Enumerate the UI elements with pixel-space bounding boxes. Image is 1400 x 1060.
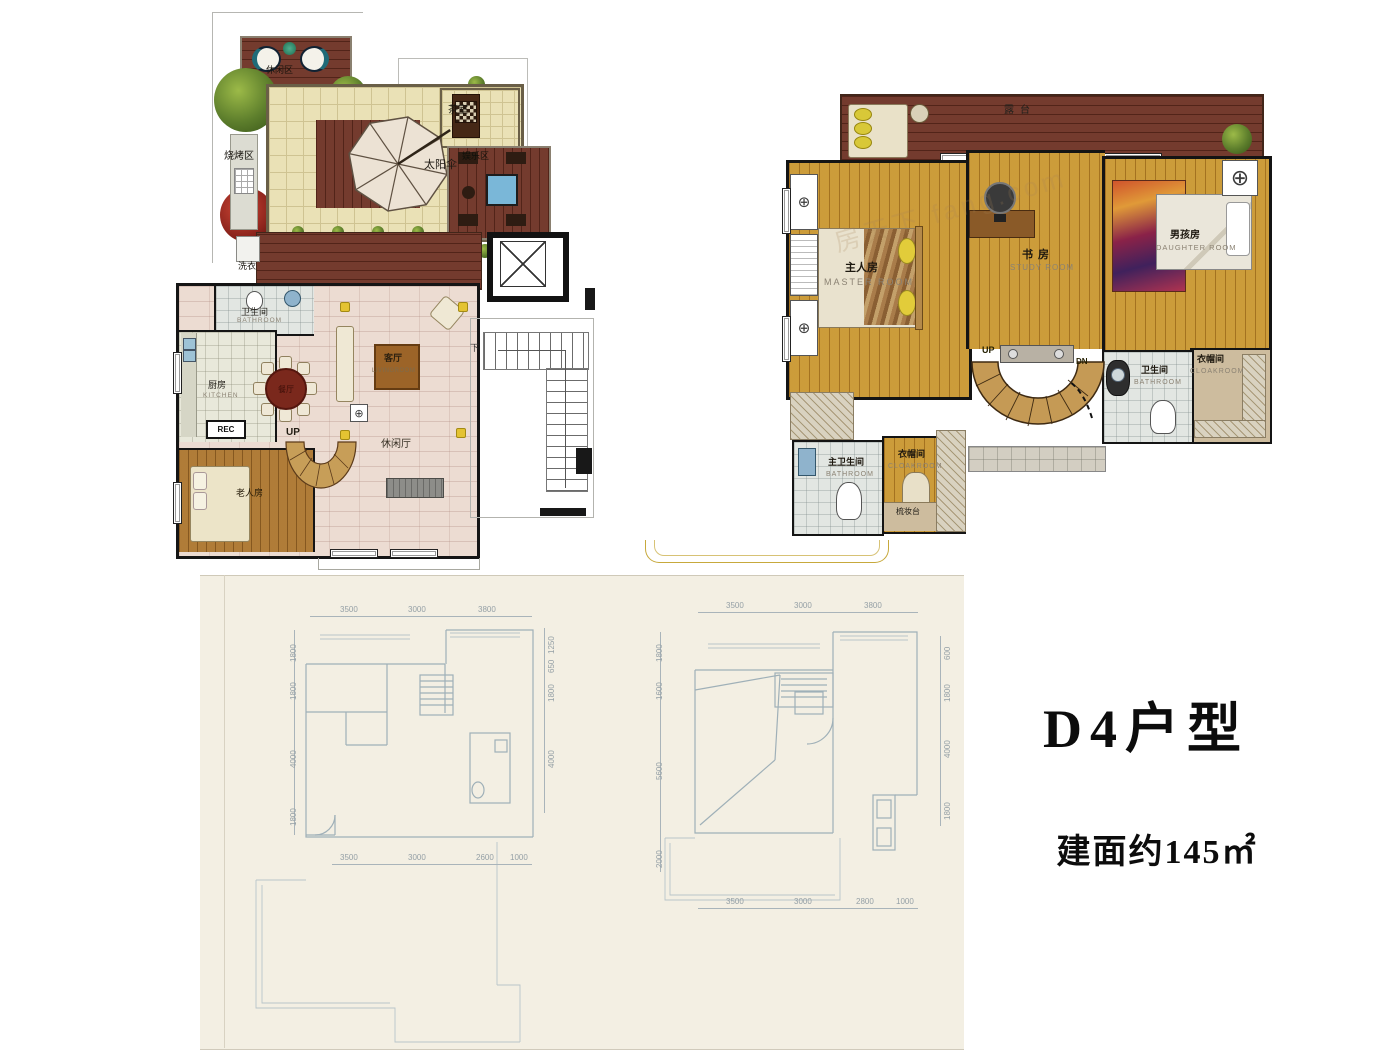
deck-mat (506, 214, 526, 226)
dim-label: 4000 (290, 750, 298, 768)
dim-label: 1000 (896, 898, 914, 906)
lounge-chair (300, 46, 329, 72)
dim-label: 3000 (794, 898, 812, 906)
shelving (936, 430, 966, 532)
bbq-grill (234, 168, 254, 194)
wardrobe (790, 234, 818, 296)
master-bath-label: 主卫生间 (828, 458, 864, 467)
terrace-plant (1222, 124, 1252, 154)
up-label-1f: UP (286, 428, 300, 438)
rec-box: REC (206, 420, 246, 439)
deck-stool (462, 186, 475, 199)
elevator-car (500, 241, 546, 287)
boy-room-label: 男孩房 (1170, 231, 1200, 241)
cloakroom-right-label-en: CLOAKROOM (1190, 368, 1245, 375)
accent (340, 302, 350, 312)
dim-label: 1800 (548, 684, 556, 702)
fan-icon: ⊕ (350, 404, 368, 422)
dim-label: 1250 (548, 636, 556, 654)
dim-label: 1800 (290, 682, 298, 700)
dimline (698, 612, 918, 613)
unit-title: D4户型 (1016, 702, 1276, 756)
window (173, 352, 182, 394)
dimline (940, 636, 941, 826)
stair-rail (498, 350, 566, 351)
umbrella-label: 太阳伞 (424, 160, 457, 171)
window (173, 482, 182, 524)
dimline (310, 616, 532, 617)
dim-label: 3500 (340, 854, 358, 862)
dining-label: 餐厅 (278, 384, 294, 395)
dim-label: 1800 (944, 802, 952, 820)
dining-chair (279, 408, 292, 422)
down-label-1f: 下 (470, 344, 479, 353)
dim-label: 3800 (864, 602, 882, 610)
leisure-area-label: 休闲区 (266, 66, 293, 75)
dn-label-2f: DN (1076, 358, 1088, 366)
dimline (332, 864, 532, 865)
dim-label: 3800 (478, 606, 496, 614)
dim-label: 1800 (290, 808, 298, 826)
pillow (193, 472, 207, 490)
bathroom-1f-label-en: BATHROOM (237, 318, 282, 325)
unit-area: 建面约145㎡ (1012, 836, 1302, 870)
stair-run-horizontal (483, 332, 589, 370)
accent (456, 428, 466, 438)
dim-label: 3000 (408, 854, 426, 862)
dim-label: 4000 (548, 750, 556, 768)
dim-label: 1800 (290, 644, 298, 662)
elevator (487, 232, 569, 302)
balcony-deck (256, 232, 482, 290)
stair-rail (565, 350, 566, 488)
coffee-table (374, 344, 420, 390)
sink-icon (183, 350, 196, 362)
closet-unit: ⊕ (790, 174, 818, 230)
dim-label: 2800 (856, 898, 874, 906)
washer (236, 236, 260, 262)
dim-label: 3500 (340, 606, 358, 614)
basin-icon (284, 290, 301, 307)
dimline (698, 908, 918, 909)
master-label-en: MASTER ROOM (824, 278, 914, 287)
elder-room-label: 老人房 (236, 489, 263, 498)
bathroom-2f-label: 卫生间 (1141, 366, 1168, 375)
toilet-icon (1150, 400, 1176, 434)
window (782, 316, 791, 362)
paper-inner-edge (224, 575, 225, 1048)
headboard (915, 226, 923, 330)
dim-label: 4000 (944, 740, 952, 758)
blueprint-left-lines (280, 595, 580, 1045)
dim-label: 3500 (726, 898, 744, 906)
tea-room-label: 茶室 (448, 106, 468, 116)
dim-label: 5600 (656, 762, 664, 780)
boy-room-label-en: DAUGHTER ROOM (1156, 244, 1237, 252)
dim-label: 2000 (656, 850, 664, 868)
deck-mat (458, 214, 478, 226)
accent (458, 302, 468, 312)
spiral-stair (282, 436, 360, 494)
monitor (994, 214, 1006, 222)
up-label-2f: UP (982, 346, 995, 355)
closet-unit: ⊕ (790, 300, 818, 356)
entertainment-label: 娱乐区 (462, 152, 489, 161)
living-label-en: LIVINGROOM (372, 368, 415, 374)
dimline (660, 632, 661, 872)
storage-stair (790, 392, 854, 440)
sink-icon (183, 338, 196, 350)
dim-label: 1000 (510, 854, 528, 862)
spa-table (486, 174, 518, 206)
dim-label: 1600 (656, 682, 664, 700)
cloakroom-left-label: 衣帽间 (898, 450, 925, 459)
landing-tiles (968, 446, 1106, 472)
pillow (193, 492, 207, 510)
master-bath-label-en: BATHROOM (826, 471, 874, 478)
blueprint-right-lines (640, 600, 960, 910)
lounge-label: 休闲厅 (381, 440, 411, 450)
dim-label: 3000 (794, 602, 812, 610)
dim-label: 2600 (476, 854, 494, 862)
daybed-pillow (854, 108, 872, 121)
bbq-area-label: 烧烤区 (224, 152, 254, 162)
gold-frame-edge-inner (654, 540, 880, 556)
dimline (544, 628, 545, 813)
floorplan-sheet: 休闲区 太阳伞 茶室 (0, 0, 1400, 1060)
laundry-label: 洗衣 (238, 262, 256, 271)
kitchen-label: 厨房 (208, 381, 226, 390)
living-label: 客厅 (384, 354, 402, 363)
dim-label: 1800 (656, 644, 664, 662)
balcony-outline (318, 558, 480, 570)
compass-icon: ⊕ (1222, 160, 1258, 196)
deck-mat (506, 152, 526, 164)
wall-chunk (540, 508, 586, 516)
window (782, 188, 791, 234)
bathroom-2f-label-en: BATHROOM (1134, 379, 1182, 386)
bathroom-1f-label: 卫生间 (241, 308, 268, 317)
cloakroom-left-label-en: CLOAKROOM (888, 463, 943, 470)
pillow (898, 290, 916, 316)
study-label: 书房 (1022, 250, 1054, 261)
u-stair (966, 352, 1110, 448)
cloakroom-right-label: 衣帽间 (1197, 355, 1224, 364)
shelving (1194, 420, 1266, 438)
dim-label: 650 (548, 660, 556, 673)
basin-bowl (1111, 368, 1125, 382)
dim-label: 3000 (408, 606, 426, 614)
dim-label: 1800 (944, 684, 952, 702)
sofa (336, 326, 354, 402)
dresser-label: 梳妆台 (896, 508, 920, 516)
window (390, 549, 438, 558)
toilet-icon (836, 482, 862, 520)
deck-plant (283, 42, 296, 55)
terrace-label: 露台 (1004, 106, 1036, 116)
rec-label: REC (218, 425, 235, 434)
wall-chunk (585, 288, 595, 310)
wall-chunk (576, 448, 592, 474)
master-label: 主人房 (845, 263, 878, 274)
basin-icon (798, 448, 816, 476)
dim-label: 3500 (726, 602, 744, 610)
daybed-pillow (854, 122, 872, 135)
daybed-pillow (854, 136, 872, 149)
side-table (910, 104, 929, 123)
study-label-en: STUDY ROOM (1010, 264, 1074, 272)
tv-console (386, 478, 444, 498)
window (330, 549, 378, 558)
kitchen-label-en: KITCHEN (203, 393, 239, 400)
dining-table: 餐厅 (265, 368, 307, 410)
dim-label: 600 (944, 647, 952, 660)
